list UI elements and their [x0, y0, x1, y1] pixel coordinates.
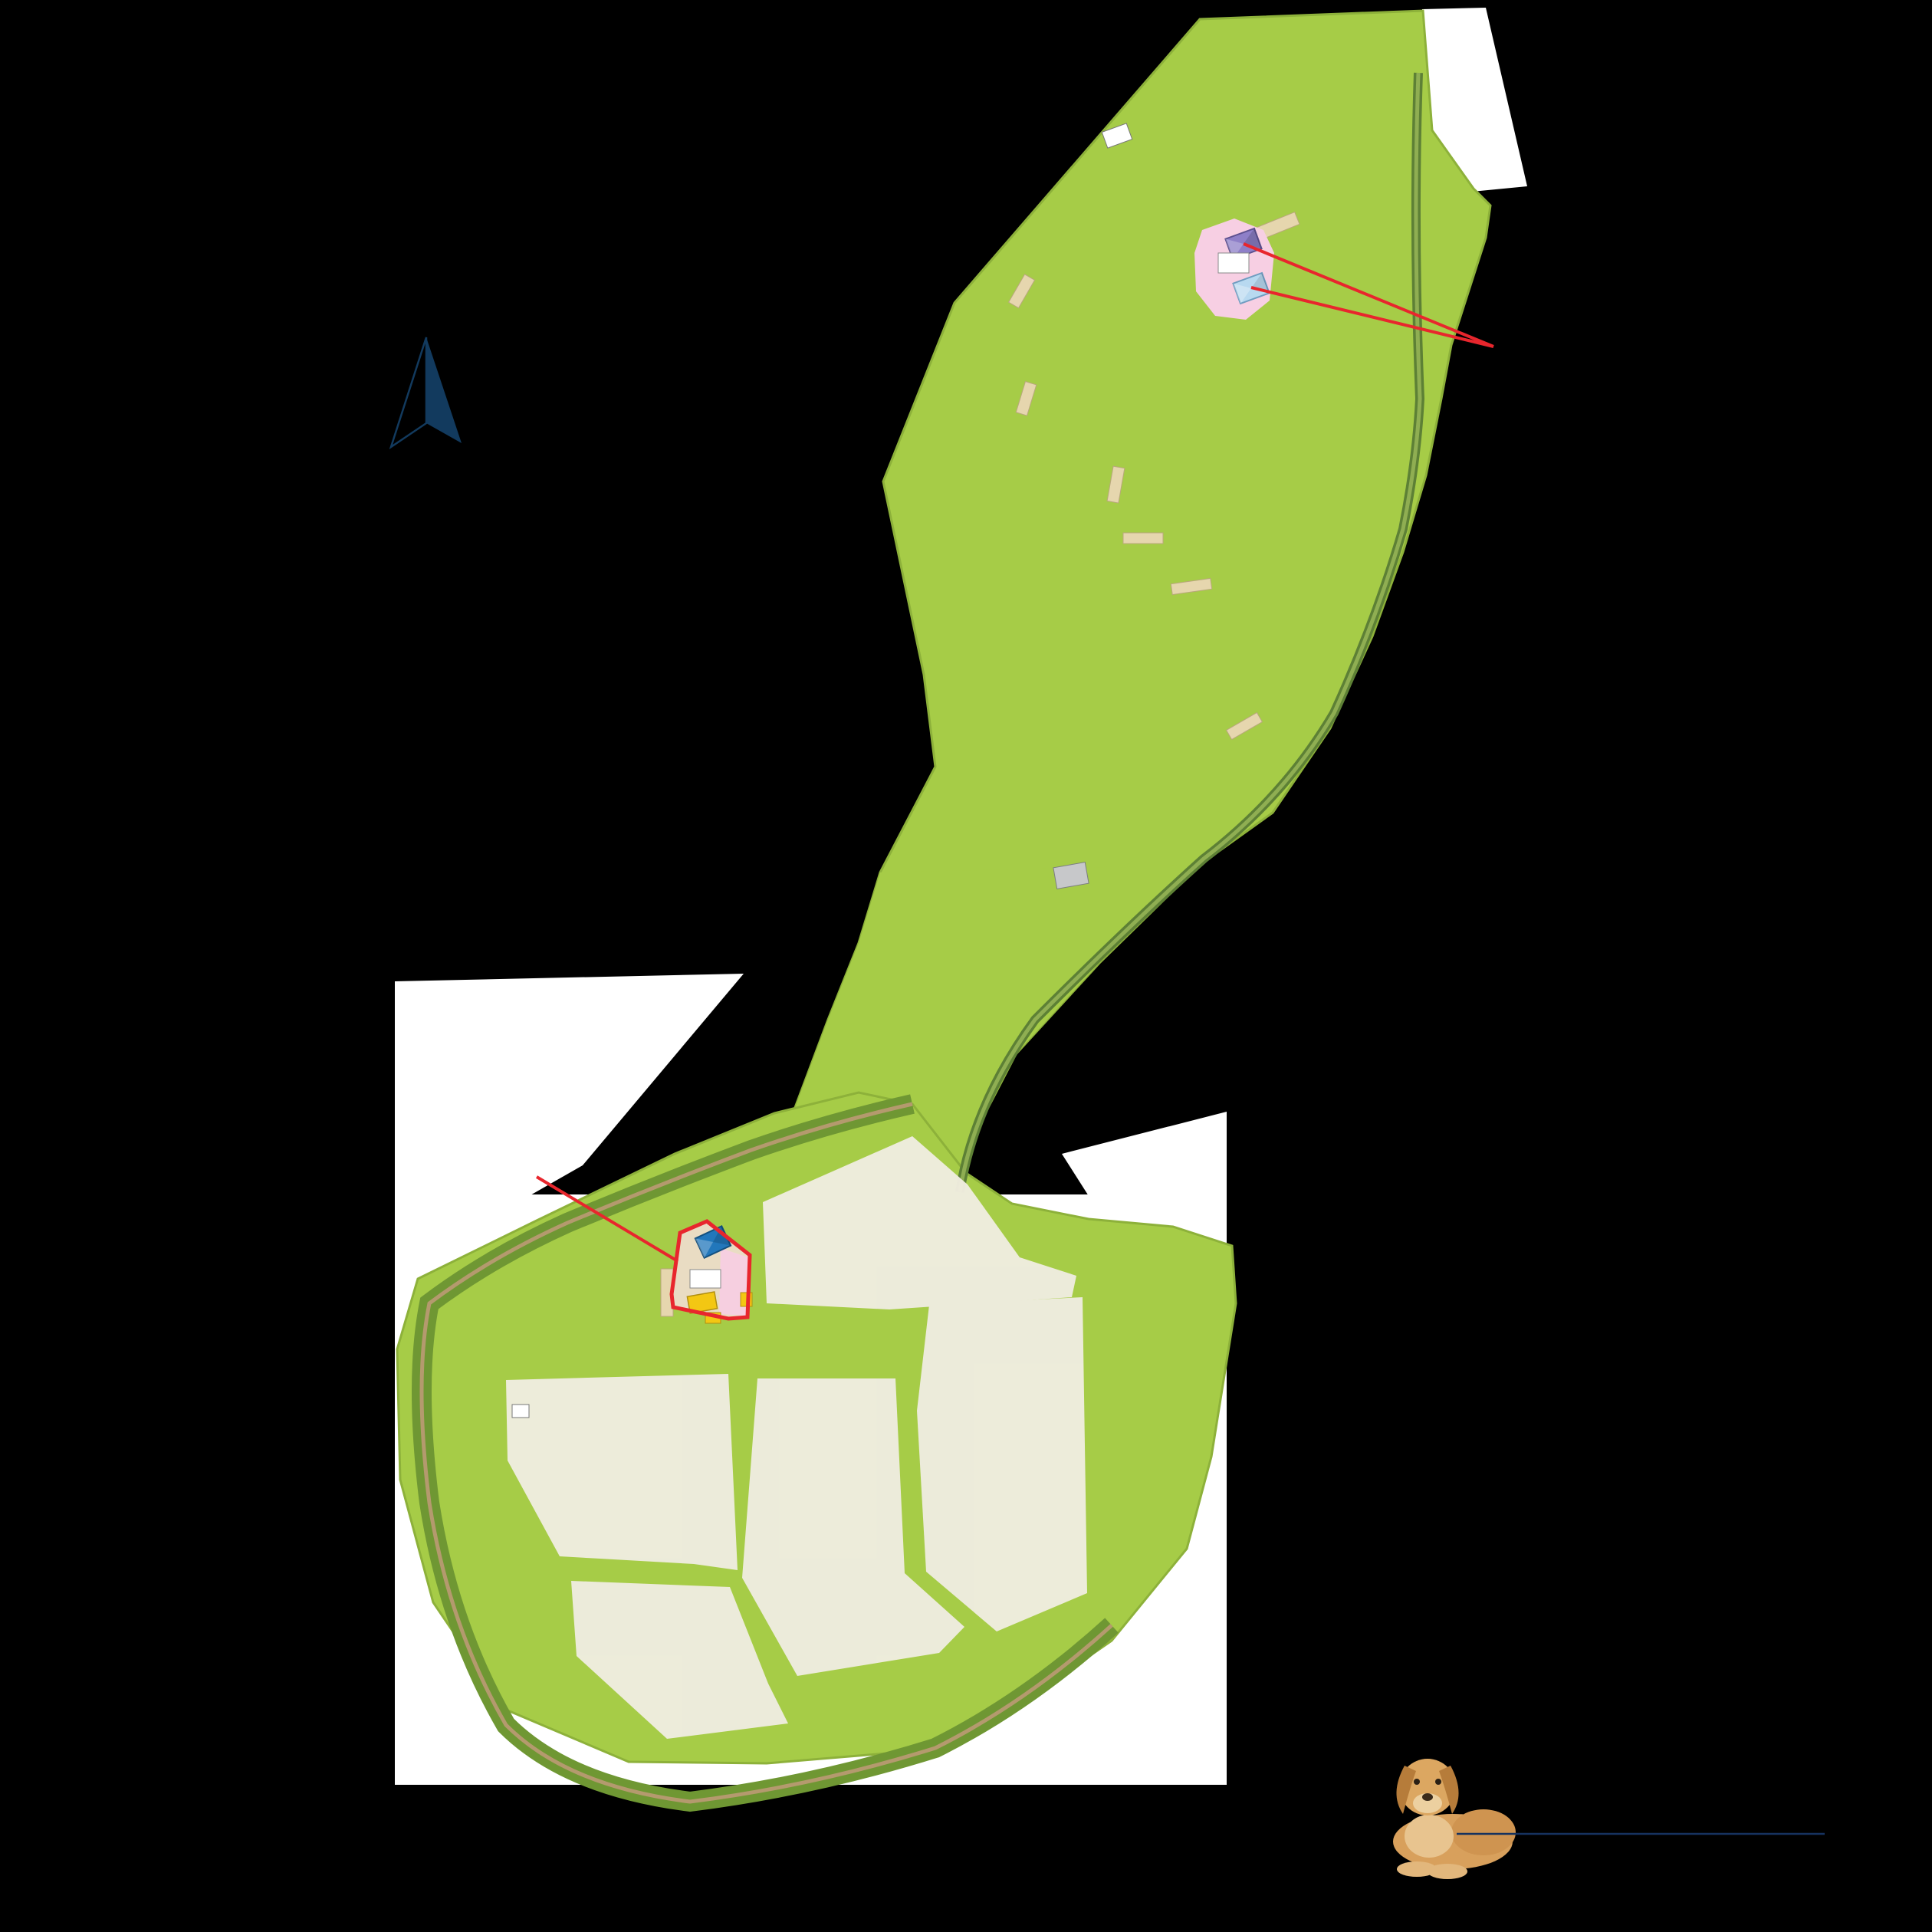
sales-office-box — [1218, 253, 1249, 273]
marketing-suite-label-box — [690, 1270, 721, 1288]
dog-paw-right — [1428, 1864, 1467, 1879]
site-plan-page — [0, 0, 1932, 1932]
dog-eye-left — [1414, 1779, 1420, 1785]
sold-block-right — [917, 1297, 1087, 1631]
parking-strip — [1123, 533, 1163, 544]
dog-nose — [1422, 1793, 1433, 1801]
dog-eye-right — [1435, 1779, 1441, 1785]
dog-chest — [1405, 1815, 1454, 1858]
sub-station-phase1 — [512, 1405, 529, 1418]
sub-station-box-phase1 — [512, 1405, 529, 1418]
site-plan-map — [0, 0, 1932, 1932]
dog-rear — [1451, 1809, 1516, 1855]
